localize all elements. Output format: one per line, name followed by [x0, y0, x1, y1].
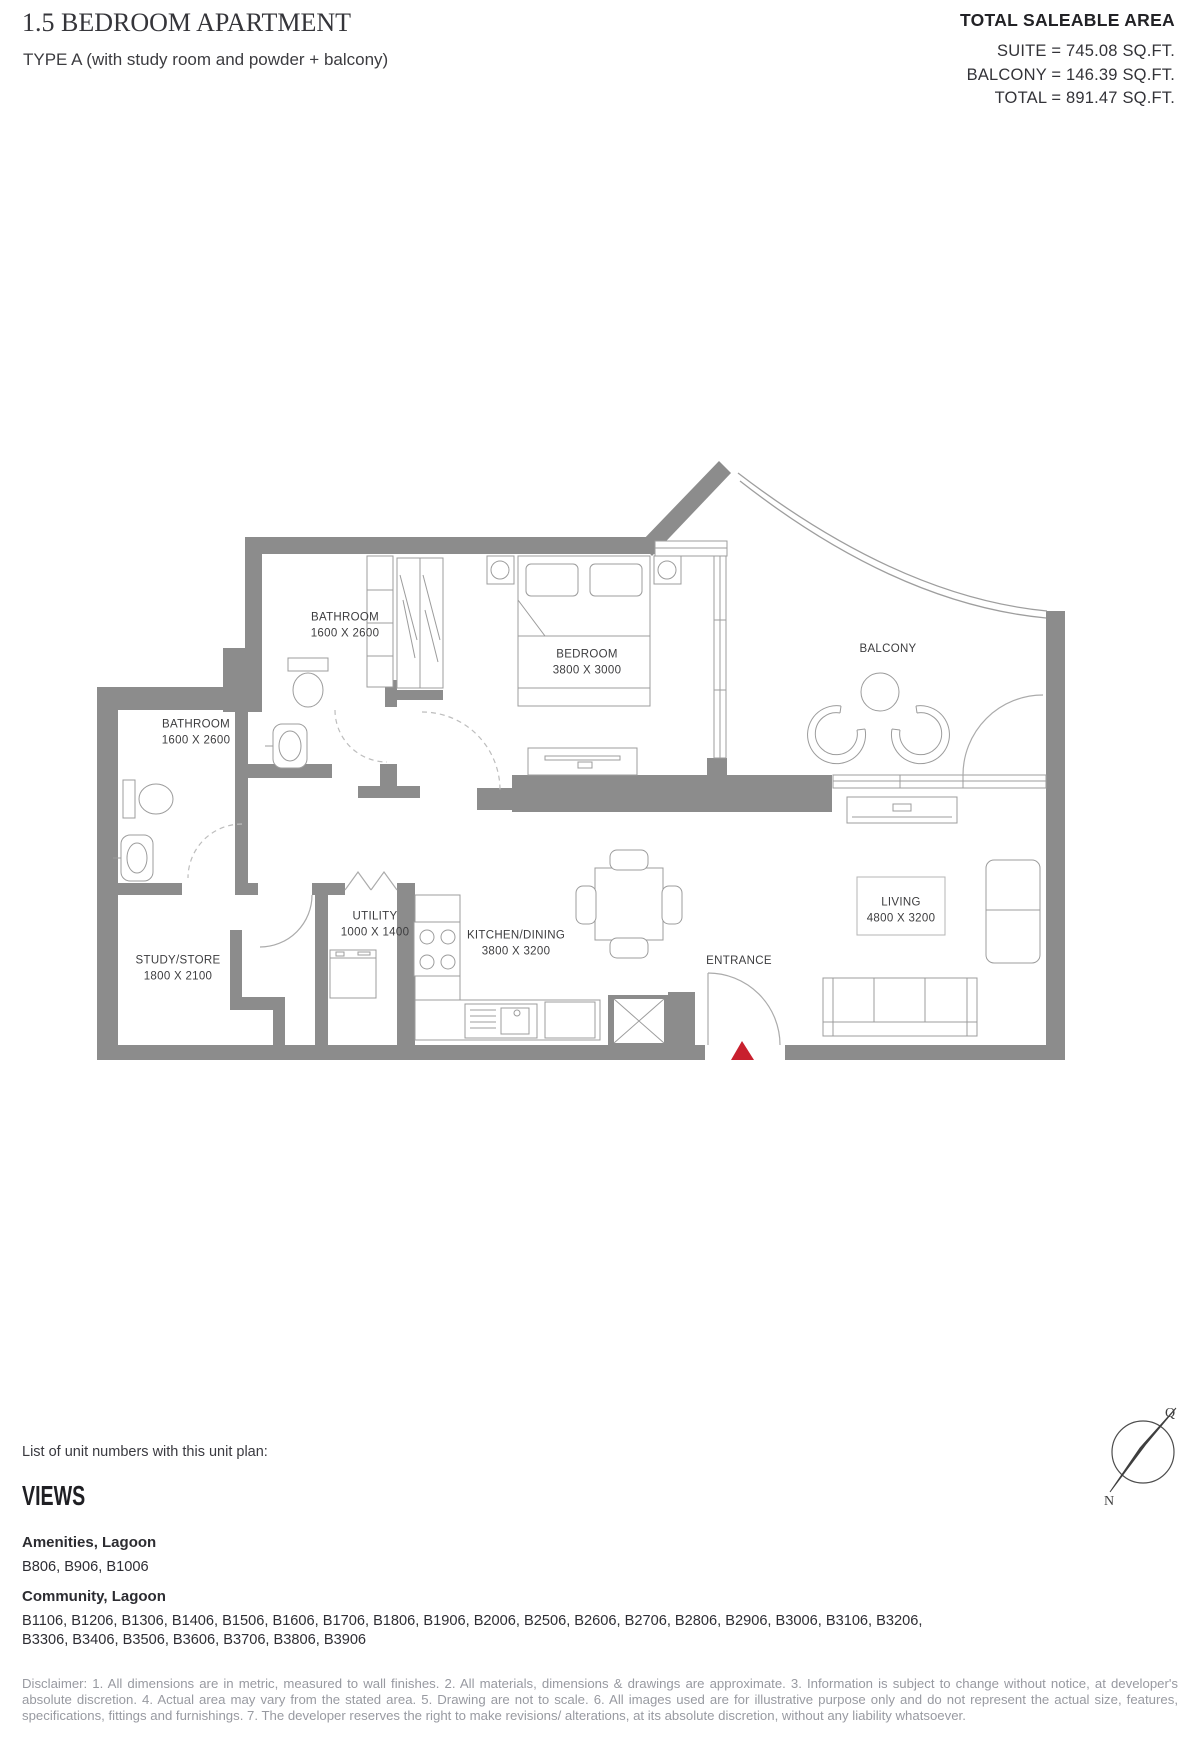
sink: [273, 724, 307, 768]
page-title: 1.5 BEDROOM APARTMENT: [22, 8, 351, 38]
shaft-cross: [614, 999, 664, 1043]
balcony-glass-line: [738, 473, 1047, 618]
disclaimer-text: Disclaimer: 1. All dimensions are in met…: [22, 1676, 1178, 1724]
tv-console: [528, 748, 637, 775]
stove: [414, 922, 460, 976]
saleable-area-block: TOTAL SALEABLE AREA SUITE = 745.08 SQ.FT…: [960, 10, 1175, 111]
kitchen-counter: [415, 1000, 600, 1040]
unit-list-intro: List of unit numbers with this unit plan…: [22, 1444, 268, 1460]
lamp: [658, 561, 676, 579]
unit-group-amenities: Amenities, Lagoon B806, B906, B1006: [22, 1534, 156, 1577]
room-label-utility: UTILITY1000 X 1400: [341, 909, 410, 940]
compass-icon: Q N: [1095, 1395, 1200, 1513]
washing-machine: [330, 950, 376, 998]
cabinet: [545, 1002, 595, 1038]
entrance-marker-icon: [731, 1041, 754, 1060]
room-label-bathroom-1: BATHROOM1600 X 2600: [311, 610, 380, 641]
toilet-tank: [123, 780, 135, 818]
lamp: [491, 561, 509, 579]
sideboard: [847, 797, 957, 823]
area-total: TOTAL = 891.47 SQ.FT.: [960, 87, 1175, 111]
balcony-chair: [808, 706, 866, 764]
view-name: Amenities, Lagoon: [22, 1534, 156, 1551]
walls: [97, 461, 1065, 1060]
balcony-table: [861, 673, 899, 711]
chair: [610, 850, 648, 870]
windows: [655, 541, 1046, 788]
room-label-balcony: BALCONY: [859, 642, 916, 658]
chair: [576, 886, 596, 924]
page-subtitle: TYPE A (with study room and powder + bal…: [23, 50, 388, 70]
area-balcony: BALCONY = 146.39 SQ.FT.: [960, 64, 1175, 88]
dining-table: [595, 868, 663, 940]
views-heading: VIEWS: [22, 1480, 85, 1512]
chair: [662, 886, 682, 924]
wall-openings: [182, 881, 785, 1062]
kitchen-sink: [465, 1004, 537, 1038]
room-label-study-store: STUDY/STORE1800 X 2100: [136, 953, 221, 984]
area-heading: TOTAL SALEABLE AREA: [960, 10, 1175, 31]
unit-group-community: Community, Lagoon B1106, B1206, B1306, B…: [22, 1588, 952, 1650]
floorplan-drawing: [0, 0, 1200, 1744]
compass-q-label: Q: [1165, 1406, 1175, 1421]
toilet-tank: [288, 658, 328, 671]
chair: [610, 938, 648, 958]
pillow: [590, 564, 642, 596]
kitchen-counter: [415, 895, 460, 1000]
furniture: [113, 556, 1040, 1040]
door-swings: [188, 695, 1043, 1045]
nightstand: [487, 556, 514, 584]
unit-numbers: B1106, B1206, B1306, B1406, B1506, B1606…: [22, 1612, 952, 1650]
room-label-entrance: ENTRANCE: [706, 954, 772, 970]
nightstand: [654, 556, 681, 584]
room-label-kitchen-dining: KITCHEN/DINING3800 X 3200: [467, 928, 565, 959]
wardrobe: [397, 558, 443, 688]
sink: [121, 835, 153, 881]
balcony-chair: [891, 706, 949, 764]
sofa: [823, 978, 977, 1036]
unit-numbers: B806, B906, B1006: [22, 1558, 156, 1577]
compass-north-label: N: [1104, 1494, 1114, 1509]
bed: [518, 556, 650, 706]
room-label-bathroom-2: BATHROOM1600 X 2600: [162, 717, 231, 748]
view-name: Community, Lagoon: [22, 1588, 952, 1605]
toilet-bowl: [293, 673, 323, 707]
room-label-bedroom: BEDROOM3800 X 3000: [553, 647, 622, 678]
brochure-page: 1.5 BEDROOM APARTMENT TYPE A (with study…: [0, 0, 1200, 1744]
armchair: [986, 860, 1040, 963]
toilet-bowl: [139, 784, 173, 814]
area-suite: SUITE = 745.08 SQ.FT.: [960, 40, 1175, 64]
pillow: [526, 564, 578, 596]
room-label-living: LIVING4800 X 3200: [867, 895, 936, 926]
